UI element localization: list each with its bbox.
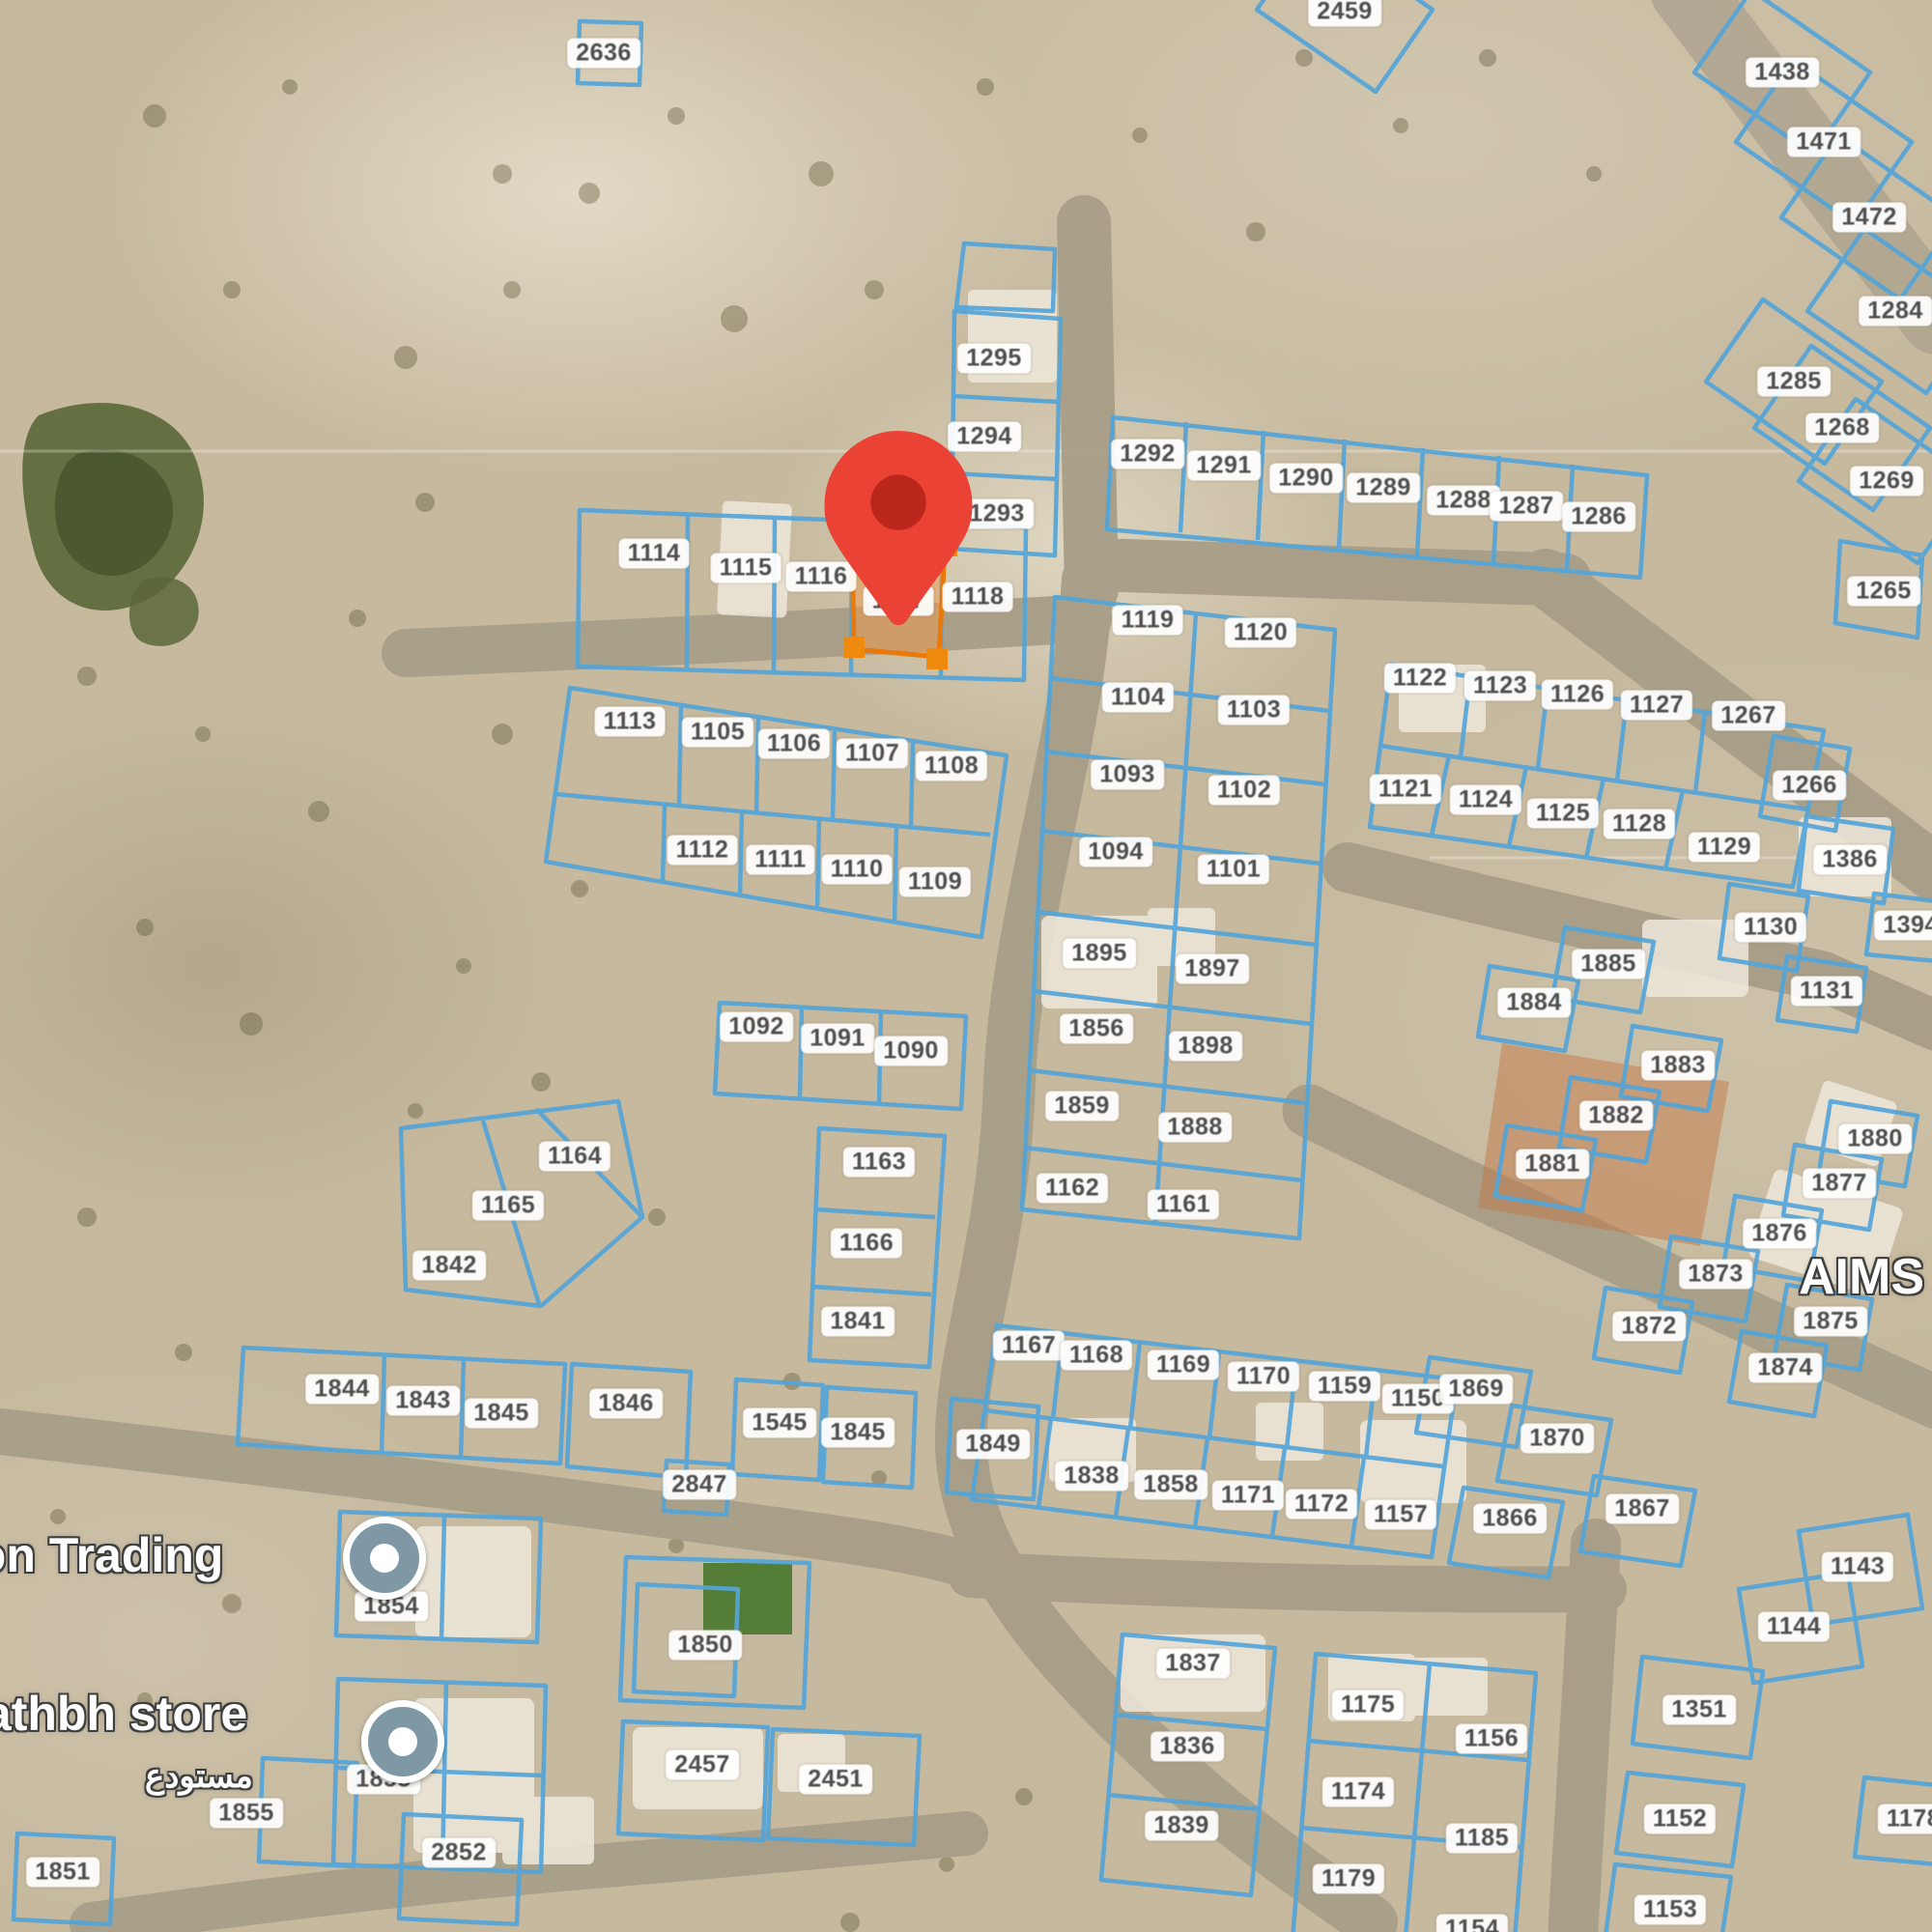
parcel-label[interactable]: 1875	[1794, 1307, 1867, 1337]
parcel-label[interactable]: 1109	[899, 867, 971, 897]
parcel-label[interactable]: 1157	[1365, 1500, 1436, 1530]
parcel-label[interactable]: 1163	[843, 1148, 915, 1178]
parcel-label[interactable]: 1291	[1187, 451, 1261, 481]
parcel-label[interactable]: 1112	[668, 836, 738, 866]
parcel-label[interactable]: 1179	[1313, 1864, 1384, 1894]
parcel-label[interactable]: 1130	[1735, 913, 1806, 943]
parcel-label[interactable]: 1175	[1332, 1690, 1404, 1720]
parcel-label[interactable]: 1094	[1079, 838, 1152, 867]
parcel-label[interactable]: 1851	[26, 1858, 99, 1888]
parcel-label[interactable]: 1114	[619, 539, 690, 569]
parcel-label[interactable]: 1438	[1746, 58, 1819, 88]
parcel-label[interactable]: 1471	[1787, 128, 1861, 157]
parcel-label[interactable]: 1156	[1456, 1724, 1527, 1754]
parcel-label[interactable]: 1874	[1748, 1353, 1822, 1383]
parcel-label[interactable]: 1267	[1712, 701, 1785, 731]
vertex-handle[interactable]	[843, 637, 865, 658]
parcel-label[interactable]: 1115	[711, 554, 781, 583]
parcel-label[interactable]: 1092	[720, 1012, 793, 1042]
parcel-label[interactable]: 1839	[1145, 1811, 1218, 1841]
parcel-label[interactable]: 1882	[1579, 1101, 1653, 1131]
parcel-label[interactable]: 1268	[1805, 413, 1879, 443]
parcel-label[interactable]: 1265	[1847, 577, 1920, 607]
parcel-label[interactable]: 2852	[422, 1838, 496, 1868]
parcel-label[interactable]: 1120	[1225, 618, 1296, 648]
parcel-label[interactable]: 2847	[663, 1470, 736, 1500]
parcel-label[interactable]: 1883	[1641, 1051, 1715, 1081]
parcel-label[interactable]: 1153	[1634, 1895, 1706, 1925]
parcel-label[interactable]: 1841	[821, 1307, 895, 1337]
parcel-label[interactable]: 1108	[916, 752, 987, 781]
parcel-label[interactable]: 1154	[1436, 1915, 1508, 1932]
parcel-label[interactable]: 1127	[1621, 691, 1692, 721]
parcel-label[interactable]: 1161	[1148, 1190, 1219, 1220]
parcel-label[interactable]: 1285	[1757, 367, 1831, 397]
parcel-label[interactable]: 1164	[539, 1142, 611, 1172]
parcel-label[interactable]: 1287	[1490, 492, 1563, 522]
parcel-label[interactable]: 1873	[1679, 1260, 1752, 1290]
parcel-label[interactable]: 1885	[1572, 950, 1645, 980]
parcel-label[interactable]: 1171	[1212, 1481, 1284, 1511]
parcel-label[interactable]: 1168	[1061, 1341, 1132, 1371]
parcel-label[interactable]: 1162	[1037, 1174, 1108, 1204]
parcel-label[interactable]: 1859	[1045, 1092, 1119, 1122]
parcel-label[interactable]: 1870	[1520, 1424, 1594, 1454]
parcel-label[interactable]: 1172	[1286, 1490, 1357, 1520]
parcel-label[interactable]: 1110	[822, 855, 893, 885]
parcel-label[interactable]: 1289	[1347, 473, 1420, 503]
parcel-label[interactable]: 1472	[1833, 203, 1906, 233]
parcel-label[interactable]: 1119	[1113, 606, 1183, 636]
parcel-label[interactable]: 1159	[1309, 1372, 1380, 1402]
parcel-label[interactable]: 1290	[1269, 464, 1343, 494]
parcel-label[interactable]: 1880	[1838, 1124, 1912, 1154]
parcel-label[interactable]: 1106	[758, 729, 830, 759]
parcel-label[interactable]: 2451	[799, 1765, 872, 1795]
store-poi-icon[interactable]	[343, 1517, 426, 1600]
parcel-label[interactable]: 1838	[1055, 1462, 1128, 1492]
parcel-label[interactable]: 1174	[1322, 1777, 1394, 1807]
parcel-label[interactable]: 2459	[1308, 0, 1381, 27]
parcel-label[interactable]: 1836	[1151, 1732, 1224, 1762]
parcel-label[interactable]: 1843	[386, 1386, 460, 1416]
parcel-label[interactable]: 1850	[668, 1631, 742, 1661]
parcel-label[interactable]: 1104	[1102, 683, 1174, 713]
vegetation-patch	[22, 403, 204, 646]
place-label: AIMS	[1799, 1248, 1924, 1306]
parcel-label[interactable]: 1131	[1791, 977, 1862, 1007]
parcel-label[interactable]: 1292	[1111, 440, 1184, 469]
parcel-label[interactable]: 1351	[1662, 1695, 1736, 1725]
parcel-label[interactable]: 1111	[746, 845, 814, 875]
parcel-label[interactable]: 1166	[831, 1229, 902, 1259]
parcel-label[interactable]: 1295	[957, 344, 1031, 374]
parcel-label[interactable]: 1124	[1450, 785, 1521, 815]
satellite-map[interactable]: 2636245914381471147212841285126812691295…	[0, 0, 1932, 1932]
parcel-label[interactable]: 1266	[1773, 771, 1846, 801]
parcel-label[interactable]: 1122	[1384, 664, 1456, 694]
parcel-label[interactable]: 1107	[837, 739, 908, 769]
parcel-label[interactable]: 1545	[743, 1408, 816, 1438]
parcel-label[interactable]: 1845	[465, 1399, 538, 1429]
parcel-label[interactable]: 1128	[1604, 810, 1675, 839]
parcel-label[interactable]: 1844	[305, 1375, 379, 1405]
store-poi-icon[interactable]	[361, 1700, 444, 1783]
parcel-label[interactable]: 1876	[1743, 1219, 1816, 1249]
parcel-label[interactable]: 1178	[1878, 1804, 1932, 1834]
parcel-label[interactable]: 1126	[1542, 680, 1613, 710]
parcel-label[interactable]: 1144	[1758, 1612, 1830, 1642]
parcel-label[interactable]: 1845	[821, 1418, 895, 1448]
parcel-label[interactable]: 1121	[1370, 775, 1441, 805]
vertex-handle[interactable]	[926, 648, 948, 669]
map-pin[interactable]	[823, 431, 974, 628]
parcel-label[interactable]: 1858	[1134, 1470, 1207, 1500]
parcel-label[interactable]: 1125	[1527, 799, 1599, 829]
parcel-label[interactable]: 1872	[1612, 1312, 1686, 1342]
parcel-label[interactable]: 1846	[589, 1389, 663, 1419]
parcel-label[interactable]: 1091	[801, 1024, 874, 1054]
parcel-label[interactable]: 1855	[210, 1799, 283, 1829]
parcel-label[interactable]: 1090	[874, 1037, 948, 1066]
parcel-label[interactable]: 1102	[1208, 776, 1280, 806]
parcel-label[interactable]: 1123	[1464, 671, 1536, 701]
parcel-label[interactable]: 1170	[1228, 1362, 1299, 1392]
parcel-label[interactable]: 1394	[1874, 911, 1932, 941]
parcel-label[interactable]: 1169	[1148, 1350, 1219, 1380]
parcel-label[interactable]: 1093	[1091, 760, 1164, 790]
parcel-label[interactable]: 1105	[682, 718, 753, 748]
parcel-label[interactable]: 1869	[1439, 1375, 1513, 1405]
parcel-label[interactable]: 1269	[1850, 467, 1923, 497]
parcel-label[interactable]: 1842	[412, 1251, 486, 1281]
parcel-label[interactable]: 1185	[1446, 1824, 1518, 1854]
parcel-label[interactable]: 1856	[1060, 1014, 1133, 1044]
parcel-label[interactable]: 1113	[595, 707, 666, 737]
place-label: con Trading	[0, 1527, 223, 1583]
parcel-label[interactable]: 1895	[1063, 939, 1136, 969]
parcel-label[interactable]: 2457	[666, 1750, 739, 1780]
parcel-label[interactable]: 1165	[472, 1191, 544, 1221]
parcel-label[interactable]: 1143	[1822, 1552, 1893, 1582]
parcel-label[interactable]: 1152	[1644, 1804, 1716, 1834]
parcel-label[interactable]: 1167	[993, 1331, 1065, 1361]
parcel-label[interactable]: 2636	[567, 39, 640, 69]
parcel-label[interactable]: 1898	[1169, 1032, 1242, 1062]
place-label: wathbh store	[0, 1686, 247, 1742]
parcel-label[interactable]: 1103	[1218, 696, 1290, 725]
parcel-label[interactable]: 1286	[1562, 502, 1635, 532]
terrain-speckles	[50, 49, 1602, 1932]
parcel-label[interactable]: 1884	[1497, 988, 1571, 1018]
parcel-label[interactable]: 1386	[1813, 845, 1887, 875]
parcel-label[interactable]: 1284	[1859, 297, 1932, 327]
lawn	[703, 1563, 792, 1634]
parcel-label[interactable]: 1877	[1803, 1169, 1876, 1199]
parcel-label[interactable]: 1867	[1605, 1494, 1679, 1524]
parcel-label[interactable]: 1837	[1156, 1649, 1230, 1679]
parcel-label[interactable]: 1129	[1689, 833, 1760, 863]
parcel-label[interactable]: 1888	[1158, 1113, 1232, 1143]
parcel-label[interactable]: 1881	[1516, 1150, 1589, 1179]
parcel-label[interactable]: 1849	[956, 1430, 1030, 1460]
parcel-label[interactable]: 1897	[1176, 954, 1249, 984]
parcel-label[interactable]: 1866	[1473, 1504, 1547, 1534]
place-label: مستودع	[145, 1757, 253, 1796]
parcel-label[interactable]: 1101	[1198, 855, 1269, 885]
